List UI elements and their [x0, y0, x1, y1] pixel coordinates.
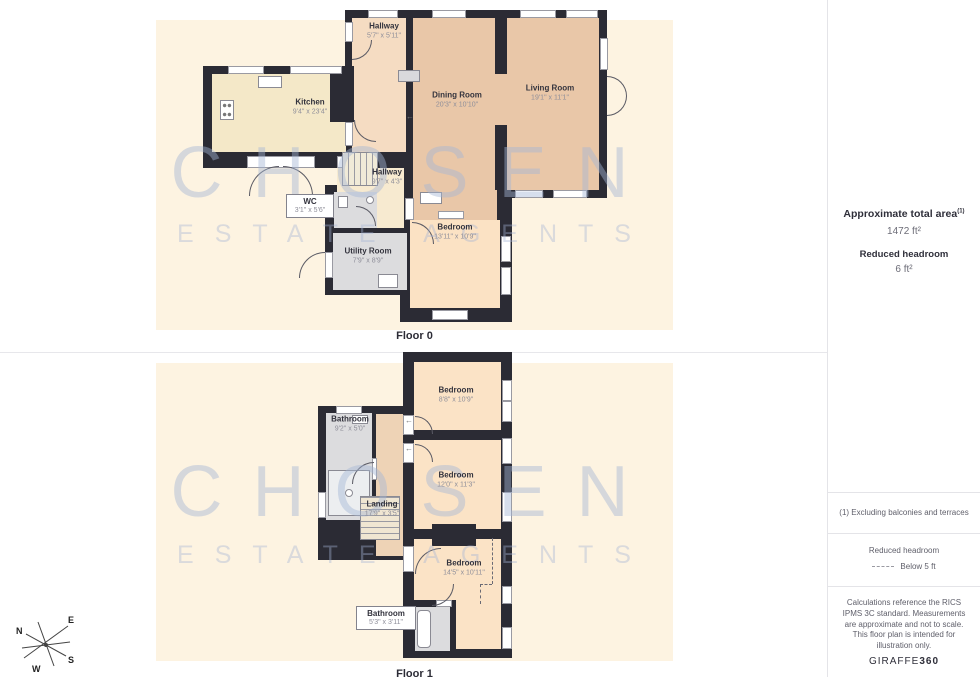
brand-suffix: 360	[919, 656, 939, 667]
reduced-headroom-line	[492, 538, 493, 584]
cupboard-icon	[398, 70, 420, 82]
door-opening	[403, 546, 414, 572]
window	[432, 310, 468, 320]
disclaimer-text: Calculations reference the RICS IPMS 3C …	[828, 598, 980, 652]
door-arc	[299, 252, 325, 278]
wall	[495, 18, 507, 74]
floor0-label: Floor 0	[156, 330, 673, 342]
window	[502, 586, 512, 604]
window	[515, 190, 543, 198]
dashed-line-sample	[872, 566, 894, 567]
window	[318, 492, 326, 518]
sidebar-divider	[828, 492, 980, 493]
total-area-footnote-marker: (1)	[957, 209, 964, 215]
door-arc	[607, 76, 627, 96]
compass-e: E	[68, 615, 74, 625]
room-label-bedroom-mid: Bedroom 12'0" x 11'3"	[437, 470, 475, 489]
door-arrow-icon: ←	[406, 112, 414, 121]
room-label-bedroom-f0: Bedroom 13'11" x 10'9"	[434, 222, 476, 241]
compass-rose: E N S W	[8, 608, 84, 680]
total-area-label: Approximate total area(1)	[828, 208, 980, 220]
door-opening	[247, 156, 315, 168]
reduced-headroom-value: 6 ft²	[828, 264, 980, 275]
room-label-bedroom-bot: Bedroom 14'5" x 10'11"	[443, 558, 485, 577]
window	[228, 66, 264, 74]
door-arc	[283, 166, 313, 196]
window	[502, 492, 512, 522]
floorplan-page: ← CHOSEN ESTATE AGENTS Hallway 5'7" x 5'…	[0, 0, 980, 693]
brand-name: GIRAFFE	[869, 656, 919, 667]
window	[502, 401, 512, 422]
door-arc	[607, 96, 627, 116]
room-label-living: Living Room 19'1" x 11'1"	[526, 83, 574, 102]
window	[290, 66, 342, 74]
reduced-headroom-line	[480, 584, 492, 585]
stove-icon	[220, 100, 234, 120]
window	[600, 38, 608, 70]
window	[566, 10, 598, 18]
room-label-landing: Landing 17'9" x 3'5"	[365, 499, 400, 518]
room-label-utility: Utility Room 7'9" x 8'9"	[344, 246, 391, 265]
room-label-bathroom-bot: Bathroom 5'3" x 3'11"	[356, 606, 416, 630]
compass-w: W	[32, 664, 41, 674]
window	[501, 236, 511, 262]
window	[502, 438, 512, 464]
room-label-bedroom-top: Bedroom 8'8" x 10'9"	[438, 385, 473, 404]
room-label-dining: Dining Room 20'3" x 10'10"	[432, 90, 482, 109]
door-opening	[325, 252, 333, 278]
door-opening	[345, 22, 353, 42]
floor1-plan: ← ← CHOSEN ESTATE AGENTS Bedroom 8'8" x …	[156, 363, 673, 661]
window	[368, 10, 398, 18]
brand-logo: GIRAFFE360	[828, 656, 980, 667]
window	[502, 380, 512, 401]
toilet-icon	[338, 196, 348, 208]
window	[553, 190, 587, 198]
legend-row: Below 5 ft	[828, 562, 980, 571]
door-arrow-icon: ←	[405, 444, 413, 453]
footnote-text: (1) Excluding balconies and terraces	[828, 508, 980, 517]
reduced-headroom-label: Reduced headroom	[828, 249, 980, 260]
door-opening	[405, 198, 414, 220]
legend-value: Below 5 ft	[900, 562, 935, 571]
floor1-label: Floor 1	[156, 668, 673, 680]
room-label-wc: WC 3'1" x 5'6"	[286, 194, 334, 218]
window	[502, 627, 512, 649]
compass-s: S	[68, 655, 74, 665]
window	[336, 406, 362, 414]
info-sidebar: Approximate total area(1) 1472 ft² Reduc…	[827, 0, 980, 677]
legend-title: Reduced headroom	[828, 546, 980, 555]
sidebar-divider	[828, 586, 980, 587]
window	[501, 267, 511, 295]
counter-icon	[258, 76, 282, 88]
bathtub-icon	[417, 610, 431, 648]
room-label-hallway-center: Hallway 9'7" x 4'3"	[372, 167, 403, 186]
wall-chimney	[330, 66, 354, 122]
reduced-headroom-line	[480, 584, 481, 604]
wall-chimney	[432, 524, 476, 546]
door-opening	[345, 122, 353, 146]
sink-icon	[420, 192, 442, 204]
drain-icon	[345, 489, 353, 497]
room-label-hallway-top: Hallway 5'7" x 5'11"	[367, 21, 401, 40]
window	[438, 211, 464, 219]
window	[432, 10, 466, 18]
door-arrow-icon: ←	[405, 416, 413, 425]
room-label-kitchen: Kitchen 9'4" x 23'4"	[293, 97, 328, 116]
total-area-value: 1472 ft²	[828, 226, 980, 237]
window	[520, 10, 556, 18]
sidebar-divider	[828, 533, 980, 534]
basin-icon	[366, 196, 374, 204]
wall	[495, 125, 507, 190]
door-arc	[249, 166, 279, 196]
room-label-bathroom-top: Bathroom 9'2" x 5'0"	[331, 414, 369, 433]
washer-icon	[378, 274, 398, 288]
floor0-plan: ← CHOSEN ESTATE AGENTS Hallway 5'7" x 5'…	[156, 20, 673, 330]
compass-n: N	[16, 626, 23, 636]
